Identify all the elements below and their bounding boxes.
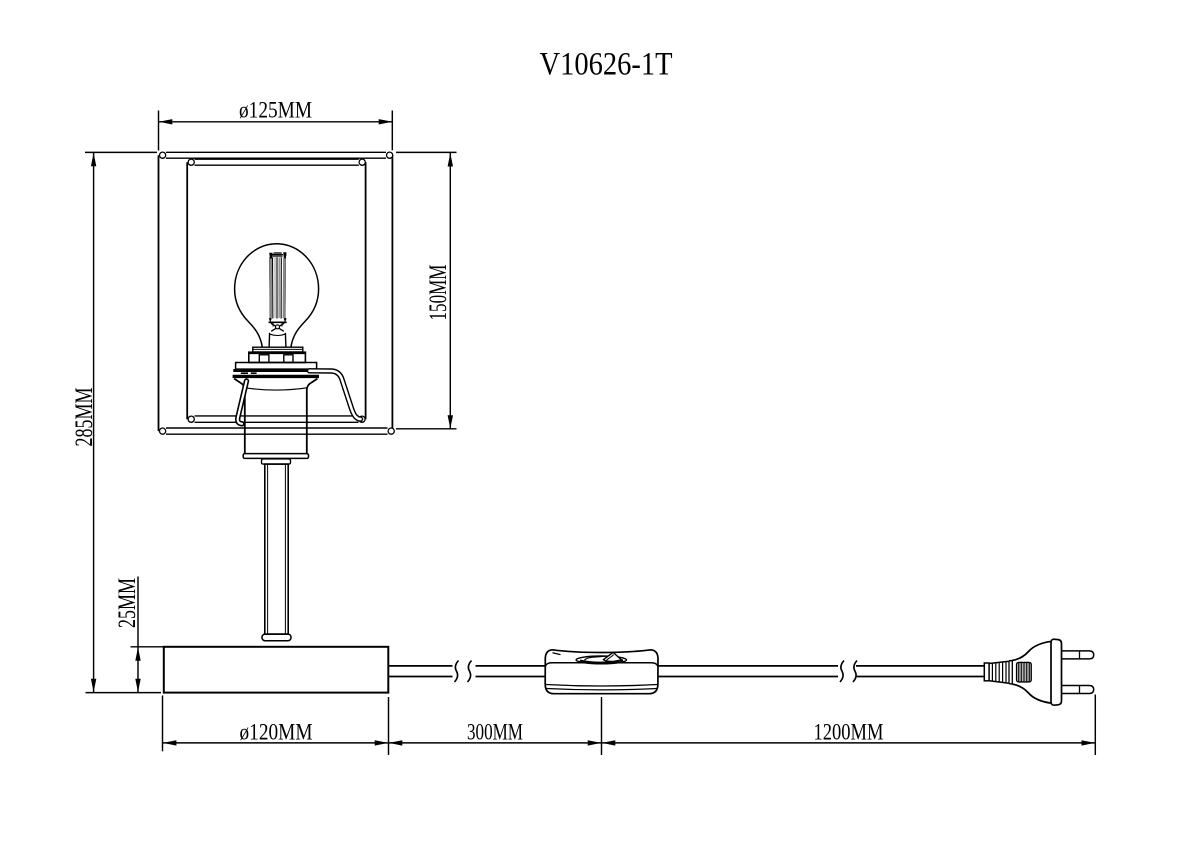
svg-text:1200MM: 1200MM [814,719,884,745]
svg-text:ø125MM: ø125MM [239,97,312,123]
svg-text:150MM: 150MM [423,265,452,321]
svg-text:300MM: 300MM [467,719,523,745]
svg-text:25MM: 25MM [112,578,141,628]
svg-text:V10626-1T: V10626-1T [540,47,673,83]
svg-text:285MM: 285MM [69,388,98,447]
svg-text:ø120MM: ø120MM [240,719,313,745]
